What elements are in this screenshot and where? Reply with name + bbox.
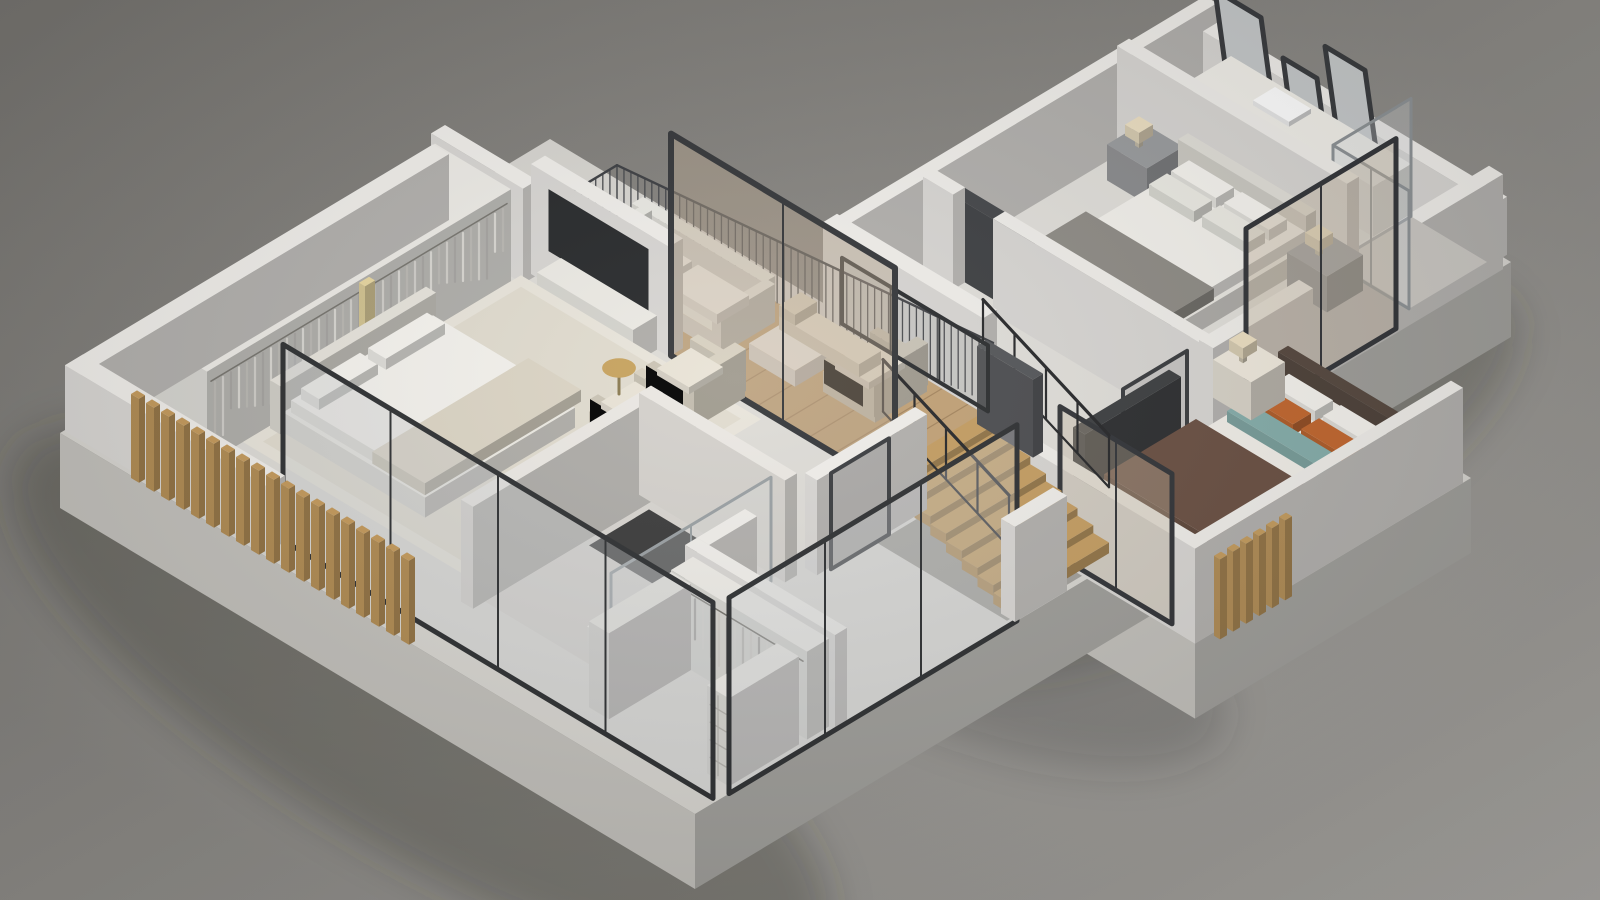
scene-background [0,0,1600,900]
floorplan-3d-render [0,0,1600,900]
